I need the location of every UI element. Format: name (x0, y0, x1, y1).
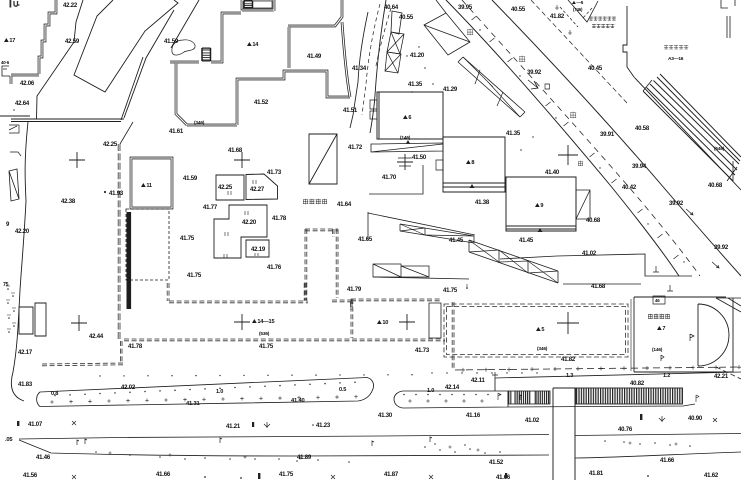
svg-text:41.40: 41.40 (545, 170, 560, 176)
svg-text:41.76: 41.76 (267, 265, 282, 271)
svg-text:41.23: 41.23 (316, 423, 331, 429)
svg-text:(146): (146) (400, 135, 411, 141)
svg-text:41.82: 41.82 (561, 357, 576, 363)
svg-text:41.78: 41.78 (272, 216, 287, 222)
svg-text:41.61: 41.61 (169, 129, 184, 135)
svg-text:41.68: 41.68 (591, 284, 606, 290)
svg-text:42.02: 42.02 (121, 385, 136, 391)
svg-text:41.75: 41.75 (187, 273, 202, 279)
svg-text:39.92: 39.92 (669, 201, 684, 207)
svg-text:41.35: 41.35 (506, 131, 521, 137)
svg-text:41.81: 41.81 (589, 471, 604, 477)
svg-text:39.91: 39.91 (600, 132, 615, 138)
svg-text:17: 17 (9, 38, 15, 44)
svg-text:41.66: 41.66 (156, 472, 171, 478)
svg-text:41.29: 41.29 (443, 87, 458, 93)
svg-text:40.45: 40.45 (588, 66, 603, 72)
svg-text:5: 5 (541, 327, 544, 333)
svg-text:41.72: 41.72 (348, 145, 363, 151)
svg-text:41.77: 41.77 (203, 205, 218, 211)
svg-text:(346): (346) (194, 120, 205, 126)
svg-text:41.83: 41.83 (18, 382, 33, 388)
svg-text:40.64: 40.64 (384, 5, 399, 11)
svg-text:41.89: 41.89 (297, 455, 312, 461)
svg-text:42.22: 42.22 (63, 3, 78, 9)
svg-text:42.38: 42.38 (61, 199, 76, 205)
svg-text:42.21: 42.21 (714, 374, 729, 380)
svg-text:40·6: 40·6 (1, 60, 10, 65)
svg-text:41.52: 41.52 (489, 460, 504, 466)
svg-text:41.75: 41.75 (259, 344, 274, 350)
svg-text:41.02: 41.02 (582, 251, 597, 257)
svg-text:40.68: 40.68 (708, 183, 723, 189)
svg-text:39.92: 39.92 (714, 245, 729, 251)
svg-text:40.76: 40.76 (618, 427, 633, 433)
svg-text:—5: —5 (576, 0, 583, 5)
svg-text:40.58: 40.58 (635, 126, 650, 132)
svg-text:9: 9 (540, 203, 543, 209)
svg-text:41.78: 41.78 (128, 344, 143, 350)
svg-text:41.59: 41.59 (183, 176, 198, 182)
svg-text:41.51: 41.51 (343, 108, 358, 114)
svg-text:41.82: 41.82 (550, 14, 565, 20)
svg-text:41.62: 41.62 (704, 473, 719, 479)
svg-text:42.06: 42.06 (20, 81, 35, 87)
svg-text:41.64: 41.64 (337, 202, 352, 208)
svg-text:A3—16: A3—16 (668, 56, 684, 62)
svg-text:(536): (536) (259, 331, 270, 337)
svg-text:42.14: 42.14 (445, 385, 460, 391)
svg-text:75: 75 (3, 282, 9, 288)
svg-text:40.55: 40.55 (511, 7, 526, 13)
svg-text:41.73: 41.73 (415, 348, 430, 354)
svg-text:41.52: 41.52 (254, 100, 269, 106)
svg-text:1.0: 1.0 (427, 388, 434, 394)
svg-text:40.55: 40.55 (399, 15, 414, 21)
svg-text:40.82: 40.82 (630, 381, 645, 387)
svg-text:41.34: 41.34 (352, 66, 367, 72)
svg-text:41.70: 41.70 (382, 175, 397, 181)
svg-text:(346): (346) (537, 346, 548, 352)
svg-text:10: 10 (382, 320, 388, 326)
svg-text:41.20: 41.20 (410, 53, 425, 59)
svg-text:42.11: 42.11 (471, 378, 486, 384)
svg-text:41.73: 41.73 (267, 170, 282, 176)
svg-text:14—15: 14—15 (257, 319, 274, 325)
svg-text:41.21: 41.21 (226, 424, 241, 430)
svg-text:41.31: 41.31 (186, 401, 200, 407)
svg-text:41.66: 41.66 (496, 475, 511, 480)
svg-text:41.59: 41.59 (164, 39, 179, 45)
svg-text:41.40: 41.40 (291, 398, 305, 404)
svg-text:46: 46 (655, 298, 660, 303)
svg-text:0.5: 0.5 (339, 387, 346, 393)
svg-text:(746): (746) (573, 7, 583, 12)
svg-text:6: 6 (408, 115, 411, 121)
svg-text:41.75: 41.75 (279, 472, 294, 478)
svg-text:42.64: 42.64 (15, 101, 30, 107)
svg-text:41.68: 41.68 (228, 148, 243, 154)
svg-text:41.45: 41.45 (519, 238, 534, 244)
svg-text:40.90: 40.90 (688, 416, 703, 422)
svg-text:41.79: 41.79 (347, 287, 362, 293)
svg-text:42.17: 42.17 (18, 350, 33, 356)
svg-text:1.0: 1.0 (216, 389, 223, 395)
svg-text:41.65: 41.65 (358, 237, 373, 243)
svg-text:.05: .05 (5, 437, 13, 443)
svg-text:41.75: 41.75 (180, 236, 195, 242)
svg-text:41.07: 41.07 (28, 422, 43, 428)
svg-text:42.20: 42.20 (15, 229, 30, 235)
svg-text:42.20: 42.20 (242, 220, 257, 226)
svg-text:40.42: 40.42 (622, 185, 637, 191)
svg-text:(146): (146) (652, 347, 663, 353)
svg-text:41.87: 41.87 (384, 472, 399, 478)
svg-text:41.93: 41.93 (109, 191, 124, 197)
svg-text:41.50: 41.50 (412, 155, 427, 161)
svg-text:39.94: 39.94 (632, 164, 647, 170)
svg-text:41.16: 41.16 (466, 413, 481, 419)
svg-text:41.75: 41.75 (443, 288, 458, 294)
svg-text:41.66: 41.66 (660, 458, 675, 464)
svg-text:41.35: 41.35 (408, 82, 423, 88)
svg-text:41.56: 41.56 (23, 473, 38, 479)
svg-text:42.25: 42.25 (103, 142, 118, 148)
svg-text:42.25: 42.25 (218, 185, 233, 191)
svg-text:42.27: 42.27 (250, 187, 265, 193)
svg-text:39.95: 39.95 (458, 5, 473, 11)
svg-text:41.46: 41.46 (36, 455, 51, 461)
svg-text:42.19: 42.19 (251, 247, 266, 253)
svg-text:8: 8 (471, 160, 474, 166)
svg-text:11: 11 (146, 183, 152, 189)
svg-text:41.49: 41.49 (307, 54, 322, 60)
svg-text:39.92: 39.92 (527, 70, 542, 76)
svg-text:7: 7 (662, 326, 665, 332)
svg-text:41.30: 41.30 (378, 413, 393, 419)
svg-text:41.38: 41.38 (475, 200, 490, 206)
svg-text:42.44: 42.44 (89, 334, 104, 340)
svg-text:40.68: 40.68 (586, 218, 601, 224)
svg-text:0.8: 0.8 (51, 391, 58, 397)
svg-text:41.02: 41.02 (525, 418, 540, 424)
